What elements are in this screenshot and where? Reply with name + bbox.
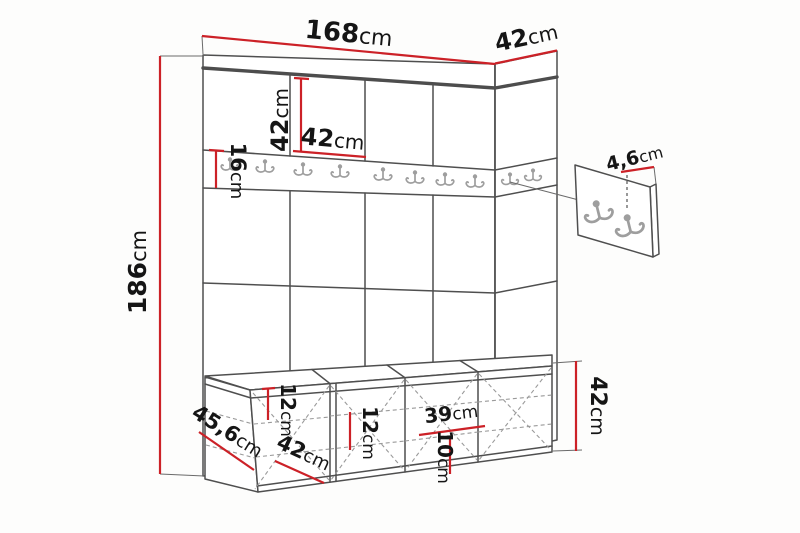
panel-face	[575, 165, 653, 257]
dimension-label: 16cm	[226, 143, 250, 200]
dimension-label: 12cm	[358, 406, 382, 460]
dimension-label: 42cm	[585, 376, 610, 436]
dimension-label: 12cm	[276, 383, 300, 437]
dimension-label: 10cm	[433, 430, 457, 484]
diagram-canvas: 168cm 42cm 186cm 42cm 42cm 16cm	[0, 0, 800, 533]
dimension-bench-height: 42cm	[553, 361, 610, 451]
dimension-label: 186cm	[123, 230, 152, 314]
dimension-label: 42cm	[266, 88, 294, 152]
dimension-bench-bottom-clearance: 10cm	[433, 430, 457, 484]
furniture-dimension-diagram: 168cm 42cm 186cm 42cm 42cm 16cm	[0, 0, 800, 533]
